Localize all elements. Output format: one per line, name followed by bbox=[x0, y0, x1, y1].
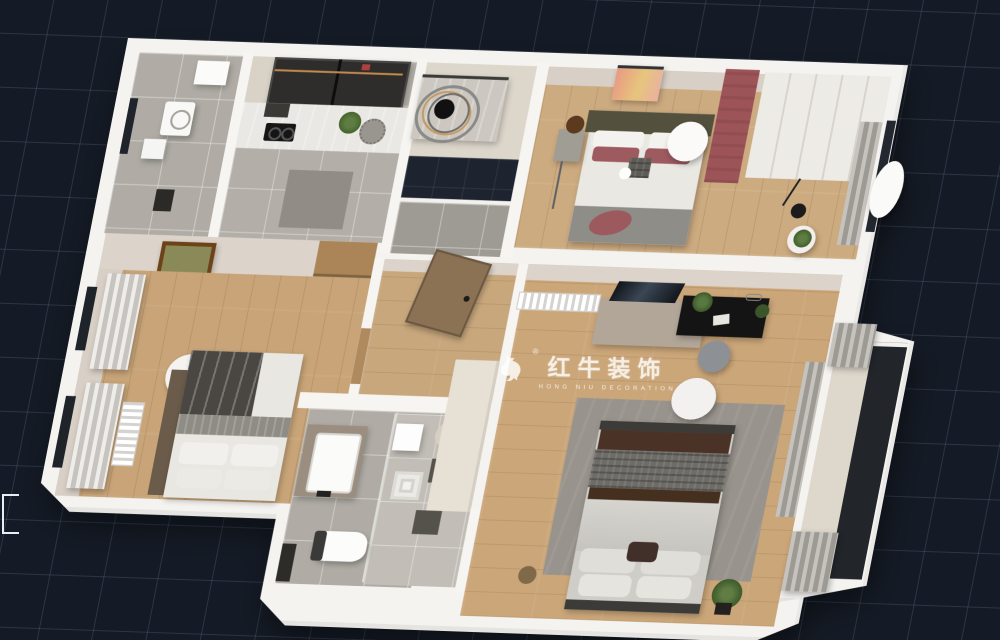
dark-blanket bbox=[179, 350, 263, 416]
pillow-4 bbox=[223, 469, 273, 490]
shower-tray bbox=[390, 471, 423, 500]
bunny-toy bbox=[618, 167, 632, 179]
entry-navy-tile-floor bbox=[401, 156, 519, 202]
bed-foot-runner bbox=[567, 206, 692, 246]
bay-curtain-north bbox=[827, 323, 878, 368]
pillow-1 bbox=[178, 442, 230, 466]
bull-icon: ® bbox=[497, 350, 531, 388]
master-pillow-4 bbox=[635, 576, 693, 600]
kitchen-mat bbox=[278, 170, 353, 230]
laundry-box bbox=[141, 139, 167, 160]
bedroom-west-closet bbox=[313, 241, 378, 279]
cabinet-red-item bbox=[361, 64, 370, 70]
desk-glasses bbox=[745, 294, 762, 302]
master-pillow-3 bbox=[577, 574, 633, 598]
tv bbox=[609, 281, 685, 303]
entry-gray-floor bbox=[390, 202, 510, 257]
apartment-plan: ® 红牛装饰 HONG NIU DECORATION bbox=[11, 38, 988, 640]
watermark-brand-cn: 红牛装饰 bbox=[548, 348, 668, 384]
brand-watermark: ® 红牛装饰 HONG NIU DECORATION bbox=[481, 339, 692, 402]
pillow-3 bbox=[175, 468, 223, 489]
living-plant-pot bbox=[714, 603, 732, 615]
drain-mat-2 bbox=[412, 510, 443, 535]
laundry-cabinet bbox=[193, 60, 230, 85]
plaid-blanket bbox=[588, 449, 730, 491]
living-radiator bbox=[516, 292, 601, 313]
range-hood bbox=[264, 103, 291, 118]
viewport-corner-mark bbox=[2, 494, 19, 534]
registered-mark: ® bbox=[533, 347, 539, 356]
pillow-2 bbox=[230, 444, 280, 467]
brown-accent-pillow bbox=[626, 542, 660, 563]
shower-stool bbox=[392, 423, 424, 451]
bedroom-north-wall-art bbox=[611, 65, 664, 101]
floorplan-3d-viewport[interactable]: ® 红牛装饰 HONG NIU DECORATION bbox=[0, 0, 1000, 640]
watermark-brand-en: HONG NIU DECORATION bbox=[539, 384, 677, 392]
gray-band bbox=[175, 414, 291, 438]
sink-faucet bbox=[316, 491, 331, 497]
